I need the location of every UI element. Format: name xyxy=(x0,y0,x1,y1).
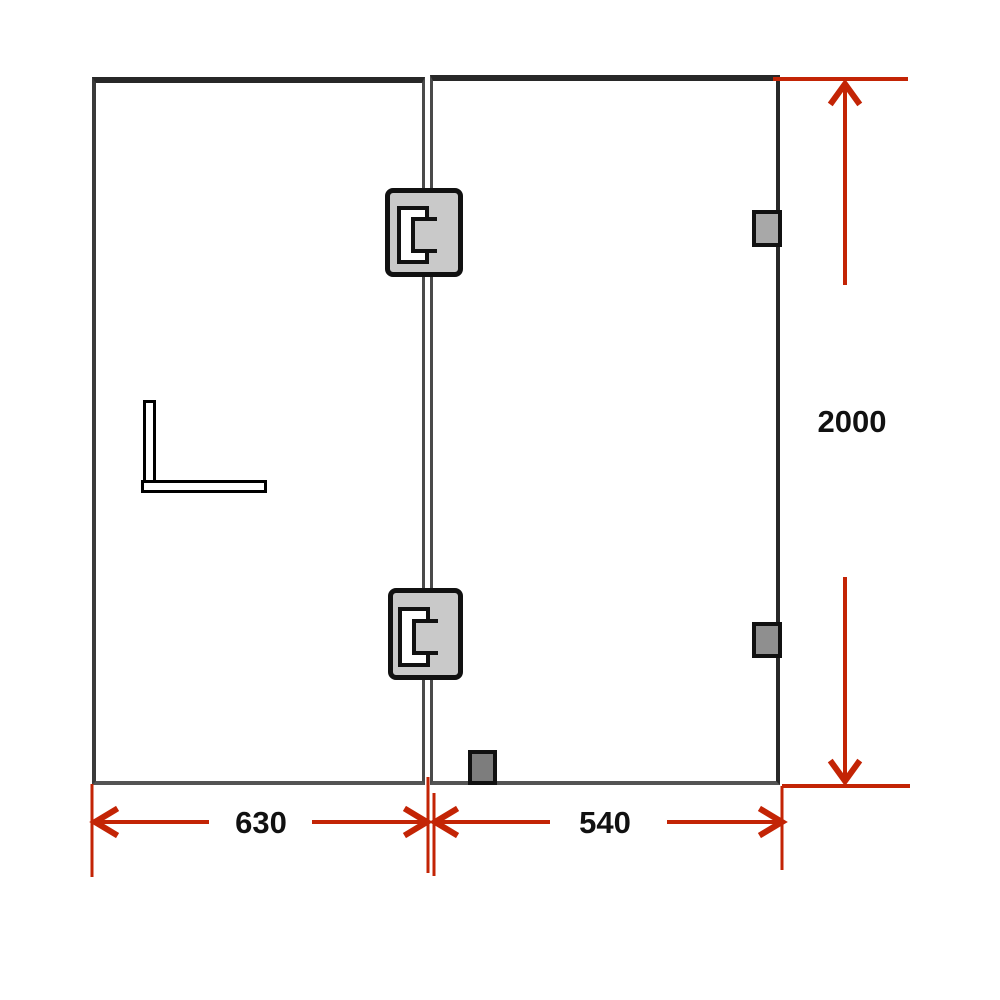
floor-stop-bracket xyxy=(468,750,497,785)
right-glass-panel xyxy=(430,75,780,785)
left-glass-panel xyxy=(92,77,425,785)
bottom-hinge-clamp-notch xyxy=(412,619,438,655)
arrow-right-icon xyxy=(407,810,427,834)
wall-bracket-lower xyxy=(752,622,782,658)
dim-label-right-width: 540 xyxy=(553,807,657,838)
arrow-left-icon xyxy=(435,810,455,834)
arrow-right-icon xyxy=(762,810,782,834)
dim-label-left-width: 630 xyxy=(209,807,313,838)
dim-label-height: 2000 xyxy=(800,406,904,437)
wall-bracket-upper xyxy=(752,210,782,247)
l-bracket-horizontal-arm xyxy=(141,480,267,493)
arrow-down-icon xyxy=(832,763,858,781)
arrow-up-icon xyxy=(832,84,858,102)
l-bracket-vertical-arm xyxy=(143,400,156,488)
technical-drawing: 630 540 2000 xyxy=(0,0,1000,1000)
arrow-left-icon xyxy=(95,810,115,834)
top-hinge-clamp-notch xyxy=(411,217,437,253)
